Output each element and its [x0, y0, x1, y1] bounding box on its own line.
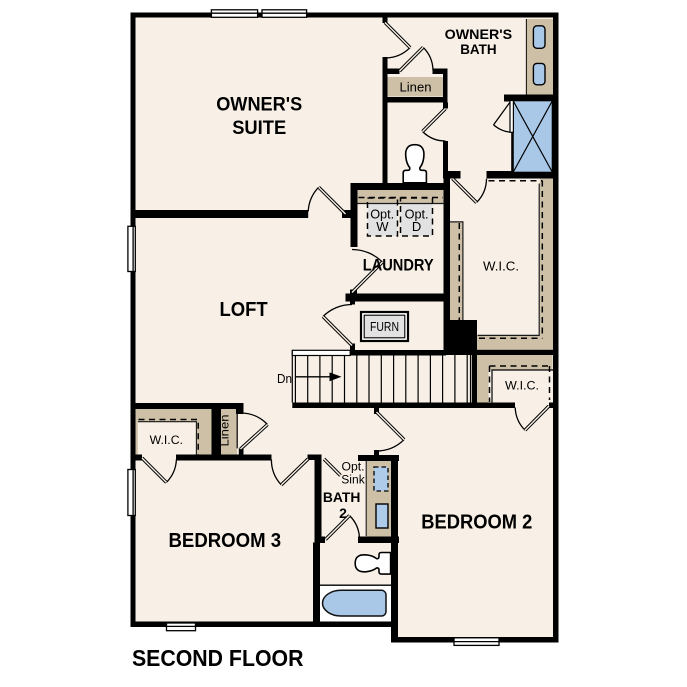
svg-text:OWNER'S: OWNER'S [445, 26, 513, 42]
svg-text:SUITE: SUITE [232, 117, 286, 139]
svg-text:LOFT: LOFT [220, 299, 268, 321]
svg-text:W.I.C.: W.I.C. [150, 435, 183, 447]
svg-text:Linen: Linen [400, 80, 432, 95]
svg-text:Sink: Sink [341, 475, 365, 487]
svg-text:BEDROOM 3: BEDROOM 3 [169, 530, 282, 552]
svg-text:BEDROOM 2: BEDROOM 2 [421, 512, 532, 534]
svg-text:W: W [376, 219, 389, 234]
svg-text:BATH: BATH [460, 41, 496, 57]
svg-text:OWNER'S: OWNER'S [216, 94, 302, 116]
svg-text:2: 2 [339, 505, 347, 521]
svg-text:FURN: FURN [370, 320, 399, 334]
svg-text:Linen: Linen [218, 415, 232, 447]
svg-text:SECOND FLOOR: SECOND FLOOR [132, 645, 304, 671]
svg-text:LAUNDRY: LAUNDRY [363, 256, 435, 275]
svg-text:Opt.: Opt. [342, 462, 365, 474]
svg-text:Dn: Dn [277, 372, 292, 386]
svg-text:W.I.C.: W.I.C. [483, 260, 519, 274]
svg-text:W.I.C.: W.I.C. [505, 379, 539, 393]
svg-text:D: D [412, 219, 421, 234]
svg-text:BATH: BATH [323, 489, 361, 505]
